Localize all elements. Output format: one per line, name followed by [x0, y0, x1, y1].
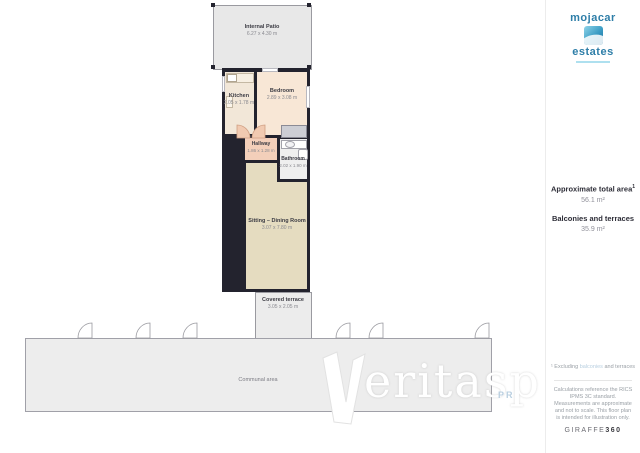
logo-word-top: mojacar: [546, 13, 640, 24]
veritas-v-icon: [320, 350, 368, 426]
kitchen-hob: [227, 74, 237, 82]
logo-tagline: [576, 61, 610, 63]
agency-logo: mojacar estates: [546, 13, 640, 63]
giraffe360-brand: GIRAFFE360: [546, 427, 640, 434]
room-name: Sitting – Dining Room: [248, 218, 305, 225]
room-name: Kitchen: [224, 93, 254, 100]
room-dims: 3.05 x 2.05 m: [262, 304, 304, 310]
room-name: Communal area: [238, 377, 277, 383]
window: [222, 76, 225, 92]
internal-patio-area: [213, 5, 312, 70]
room-label-kitchen: Kitchen 2.05 x 1.78 m: [224, 93, 254, 106]
total-area-label: Approximate total area1: [546, 183, 640, 194]
watermark: eritasp PR: [318, 346, 545, 430]
room-dims: 3.07 x 7.80 m: [248, 225, 305, 231]
room-dims: 1.86 x 1.28 m: [247, 148, 274, 154]
room-name: Hallway: [247, 141, 274, 148]
room-label-terrace: Covered terrace 3.05 x 2.05 m: [262, 297, 304, 310]
room-name: Bedroom: [267, 88, 297, 95]
room-dims: 2.05 x 1.78 m: [224, 100, 254, 106]
brand-suffix: 360: [605, 427, 621, 434]
balconies-label: Balconies and terraces: [546, 214, 640, 223]
total-area-text: Approximate total area: [551, 185, 632, 194]
footnote-highlight: balconies: [580, 364, 603, 370]
room-label-bathroom: Bathroom 2.02 x 1.90 m: [279, 156, 306, 169]
agency-logo-icon: [584, 26, 603, 45]
wall-stub: [211, 65, 215, 69]
room-name: Covered terrace: [262, 297, 304, 304]
room-label-communal: Communal area: [238, 377, 277, 383]
disclaimer-text: Calculations reference the RICS IPMS 3C …: [553, 387, 633, 422]
window: [262, 68, 278, 72]
wall-stub: [211, 3, 215, 7]
room-dims: 2.02 x 1.90 m: [279, 163, 306, 169]
balconies-value: 35.9 m²: [546, 226, 640, 233]
room-name: Internal Patio: [245, 24, 280, 31]
wall-stub: [307, 3, 311, 7]
footnote-suffix: and terraces: [603, 364, 635, 370]
room-label-patio: Internal Patio 6.27 x 4.30 m: [245, 24, 280, 37]
window: [306, 86, 310, 108]
room-label-hallway: Hallway 1.86 x 1.28 m: [247, 141, 274, 154]
room-dims: 2.89 x 3.08 m: [267, 95, 297, 101]
logo-word-bottom: estates: [546, 47, 640, 58]
room-label-bedroom: Bedroom 2.89 x 3.08 m: [267, 88, 297, 101]
floorplan-page: Internal Patio 6.27 x 4.30 m Kitchen 2.0…: [0, 0, 640, 453]
footnote-prefix: ¹ Excluding: [551, 364, 580, 370]
area-summary: Approximate total area1 56.1 m² Balconie…: [546, 183, 640, 243]
room-dims: 6.27 x 4.30 m: [245, 31, 280, 37]
watermark-subtext: PR: [498, 390, 515, 400]
communal-door-arcs: [0, 315, 545, 345]
info-sidebar: mojacar estates Approximate total area1 …: [545, 0, 640, 453]
total-area-value: 56.1 m²: [546, 197, 640, 204]
area-footnote: ¹ Excluding balconies and terraces: [546, 364, 640, 370]
room-name: Bathroom: [279, 156, 306, 163]
sidebar-divider: [554, 380, 632, 381]
room-label-sitting: Sitting – Dining Room 3.07 x 7.80 m: [248, 218, 305, 231]
brand-name: GIRAFFE: [564, 427, 605, 434]
total-area-footnote-marker: 1: [632, 184, 635, 190]
